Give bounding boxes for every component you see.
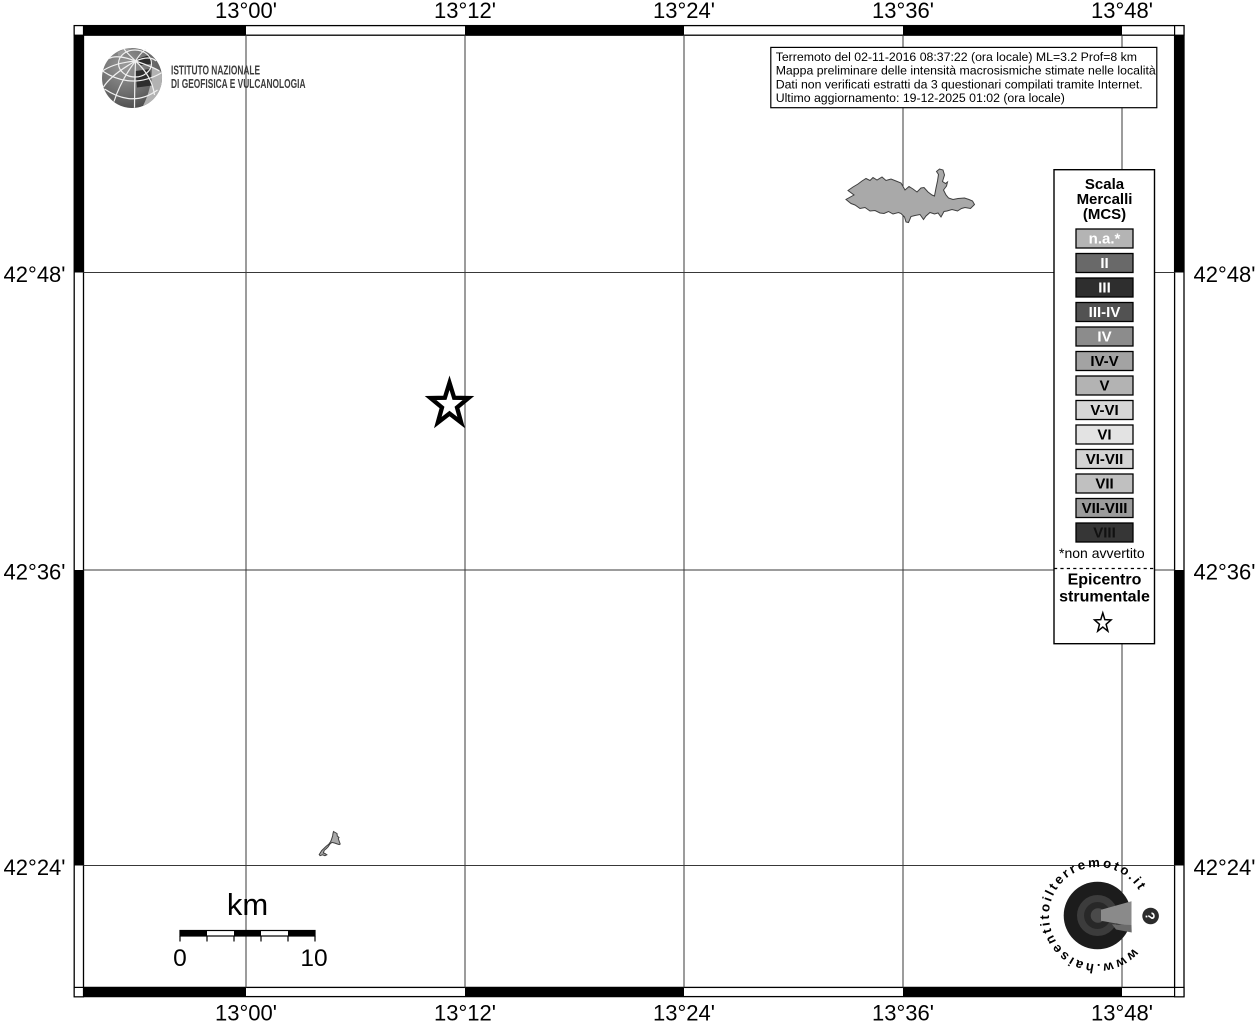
svg-text:IV: IV [1097, 329, 1111, 346]
svg-text:Ultimo aggiornamento: 19-12-20: Ultimo aggiornamento: 19-12-2025 01:02 (… [776, 91, 1065, 105]
svg-text:Epicentro: Epicentro [1068, 572, 1142, 589]
svg-text:III: III [1098, 280, 1111, 297]
svg-text:VII: VII [1095, 476, 1113, 493]
svg-text:Mappa preliminare delle intens: Mappa preliminare delle intensità macros… [776, 64, 1156, 78]
svg-text:42°36': 42°36' [1194, 560, 1256, 585]
svg-text:Dati non verificati estratti d: Dati non verificati estratti da 3 questi… [776, 77, 1143, 91]
svg-text:n.a.*: n.a.* [1089, 231, 1121, 248]
svg-text:42°24': 42°24' [1194, 855, 1256, 880]
svg-text:VIII: VIII [1093, 525, 1116, 542]
svg-text:0: 0 [173, 945, 187, 972]
svg-text:42°48': 42°48' [1194, 262, 1256, 287]
svg-text:13°00': 13°00' [215, 0, 277, 23]
svg-text:DI GEOFISICA E VULCANOLOGIA: DI GEOFISICA E VULCANOLOGIA [171, 77, 306, 91]
svg-text:10: 10 [300, 945, 327, 972]
svg-text:13°48': 13°48' [1091, 0, 1153, 23]
svg-text:13°24': 13°24' [653, 1001, 715, 1024]
svg-text:strumentale: strumentale [1059, 589, 1150, 606]
svg-text:V: V [1099, 378, 1109, 395]
svg-text:*non avvertito: *non avvertito [1059, 545, 1145, 561]
svg-text:Terremoto del 02-11-2016 08:37: Terremoto del 02-11-2016 08:37:22 (ora l… [776, 50, 1137, 64]
svg-text:42°48': 42°48' [4, 262, 66, 287]
svg-text:VI: VI [1097, 427, 1111, 444]
svg-text:V-VI: V-VI [1090, 402, 1118, 419]
svg-text:13°36': 13°36' [872, 0, 934, 23]
svg-text:III-IV: III-IV [1089, 304, 1121, 321]
svg-text:II: II [1100, 255, 1108, 272]
svg-text:(MCS): (MCS) [1083, 206, 1126, 223]
svg-text:IV-V: IV-V [1090, 353, 1118, 370]
svg-text:13°48': 13°48' [1091, 1001, 1153, 1024]
svg-text:VII-VIII: VII-VIII [1082, 500, 1128, 517]
svg-text:13°12': 13°12' [434, 0, 496, 23]
svg-text:42°36': 42°36' [4, 560, 66, 585]
svg-text:13°36': 13°36' [872, 1001, 934, 1024]
svg-text:km: km [227, 887, 268, 922]
svg-text:13°00': 13°00' [215, 1001, 277, 1024]
svg-text:42°24': 42°24' [4, 855, 66, 880]
svg-text:VI-VII: VI-VII [1086, 451, 1124, 468]
svg-text:13°12': 13°12' [434, 1001, 496, 1024]
svg-text:ISTITUTO NAZIONALE: ISTITUTO NAZIONALE [171, 64, 260, 78]
svg-text:13°24': 13°24' [653, 0, 715, 23]
